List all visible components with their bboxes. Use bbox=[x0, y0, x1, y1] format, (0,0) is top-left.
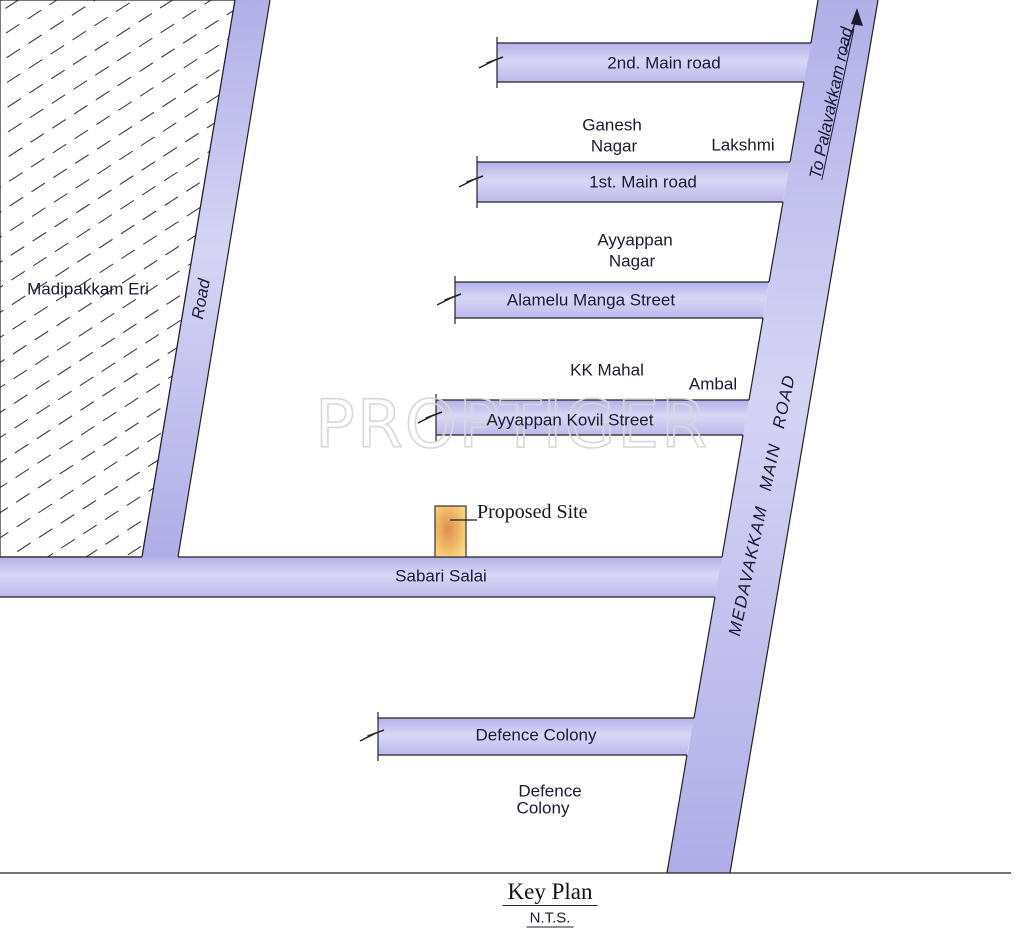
area-label-defence-colony-line1: Defence bbox=[518, 783, 581, 800]
sabari-salai-road bbox=[0, 557, 722, 597]
map-scale-note: N.T.S. bbox=[527, 911, 574, 928]
road-label-first-main: 1st. Main road bbox=[589, 174, 697, 191]
proposed-site-label: Proposed Site bbox=[477, 502, 588, 522]
road-label-sabari: Sabari Salai bbox=[395, 568, 487, 585]
road-label-defence: Defence Colony bbox=[476, 727, 597, 744]
area-label-lakshmi: Lakshmi bbox=[711, 137, 774, 154]
map-title: Key Plan bbox=[503, 880, 598, 906]
area-label-defence-colony-line2: Colony bbox=[517, 800, 570, 817]
area-label-ganesh-nagar-line2: Nagar bbox=[591, 138, 637, 155]
area-label-madipakkam-eri: Madipakkam Eri bbox=[27, 281, 149, 298]
road-label-alamelu: Alamelu Manga Street bbox=[507, 292, 675, 309]
area-label-ayyappan-nagar-line2: Nagar bbox=[609, 253, 655, 270]
proposed-site-marker bbox=[435, 506, 477, 557]
key-plan-map: PROPTIGER 2nd. Main road Ganesh Nagar La… bbox=[0, 0, 1016, 928]
area-label-ayyappan-nagar-line1: Ayyappan bbox=[597, 232, 672, 249]
area-label-ambal: Ambal bbox=[689, 376, 737, 393]
area-label-kk-mahal: KK Mahal bbox=[570, 362, 644, 379]
area-label-ganesh-nagar-line1: Ganesh bbox=[582, 117, 642, 134]
map-canvas: PROPTIGER bbox=[0, 0, 1016, 928]
road-label-second-main: 2nd. Main road bbox=[607, 55, 720, 72]
road-label-ayyappan-kovil: Ayyappan Kovil Street bbox=[487, 412, 654, 429]
